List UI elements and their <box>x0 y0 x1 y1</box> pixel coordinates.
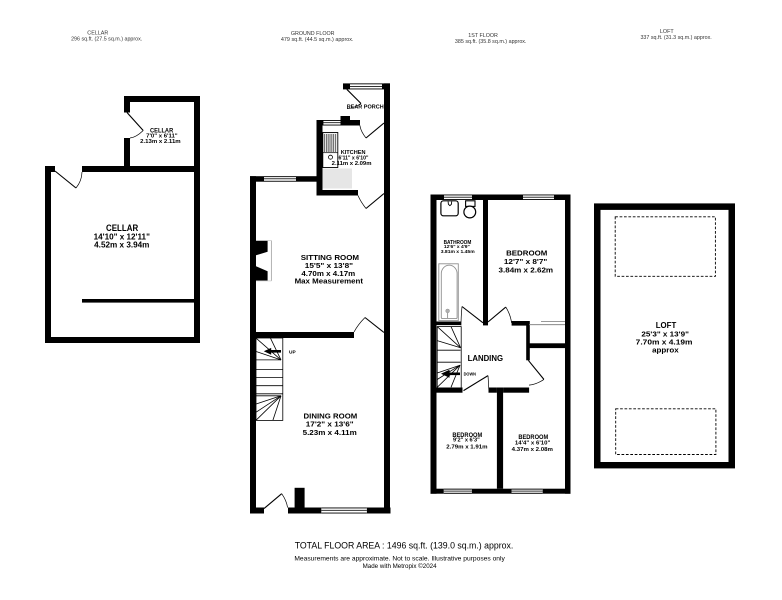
svg-text:approx: approx <box>652 345 680 354</box>
svg-text:DOWN: DOWN <box>464 372 477 377</box>
svg-text:UP: UP <box>289 350 296 356</box>
svg-text:296 sq.ft. (27.5 sq.m.) approx: 296 sq.ft. (27.5 sq.m.) approx. <box>71 37 143 43</box>
svg-text:4.37m x 2.08m: 4.37m x 2.08m <box>512 447 553 453</box>
svg-text:REAR PORCH: REAR PORCH <box>347 104 384 110</box>
svg-text:CELLAR: CELLAR <box>87 30 108 36</box>
svg-text:479 sq.ft. (44.5 sq.m.) approx: 479 sq.ft. (44.5 sq.m.) approx. <box>281 37 354 43</box>
svg-text:3.84m x 2.62m: 3.84m x 2.62m <box>499 265 554 274</box>
svg-text:2.13m x 2.11m: 2.13m x 2.11m <box>140 139 181 145</box>
svg-text:5.23m x 4.11m: 5.23m x 4.11m <box>303 428 357 437</box>
svg-text:GROUND FLOOR: GROUND FLOOR <box>291 31 335 37</box>
svg-text:3.81m x 1.45m: 3.81m x 1.45m <box>441 249 475 254</box>
svg-text:385 sq.ft. (35.8 sq.m.) approx: 385 sq.ft. (35.8 sq.m.) approx. <box>455 39 527 45</box>
svg-text:Measurements are approximate.: Measurements are approximate. Not to sca… <box>294 556 505 563</box>
svg-text:Made with Metropix ©2024: Made with Metropix ©2024 <box>363 562 437 570</box>
svg-text:2.11m x 2.09m: 2.11m x 2.09m <box>332 161 372 167</box>
svg-text:9'2" x 6'3": 9'2" x 6'3" <box>453 438 480 444</box>
svg-text:LOFT: LOFT <box>656 321 677 330</box>
svg-text:2.79m x 1.91m: 2.79m x 1.91m <box>446 444 487 450</box>
svg-text:4.52m x 3.94m: 4.52m x 3.94m <box>94 240 150 250</box>
svg-text:337 sq.ft. (31.3 sq.m.) approx: 337 sq.ft. (31.3 sq.m.) approx. <box>640 35 712 41</box>
svg-text:TOTAL FLOOR AREA : 1496 sq.ft.: TOTAL FLOOR AREA : 1496 sq.ft. (139.0 sq… <box>295 540 514 551</box>
svg-text:LANDING: LANDING <box>468 354 503 363</box>
svg-text:14'4" x 6'10": 14'4" x 6'10" <box>515 440 551 446</box>
svg-text:Max Measurement: Max Measurement <box>295 277 364 286</box>
